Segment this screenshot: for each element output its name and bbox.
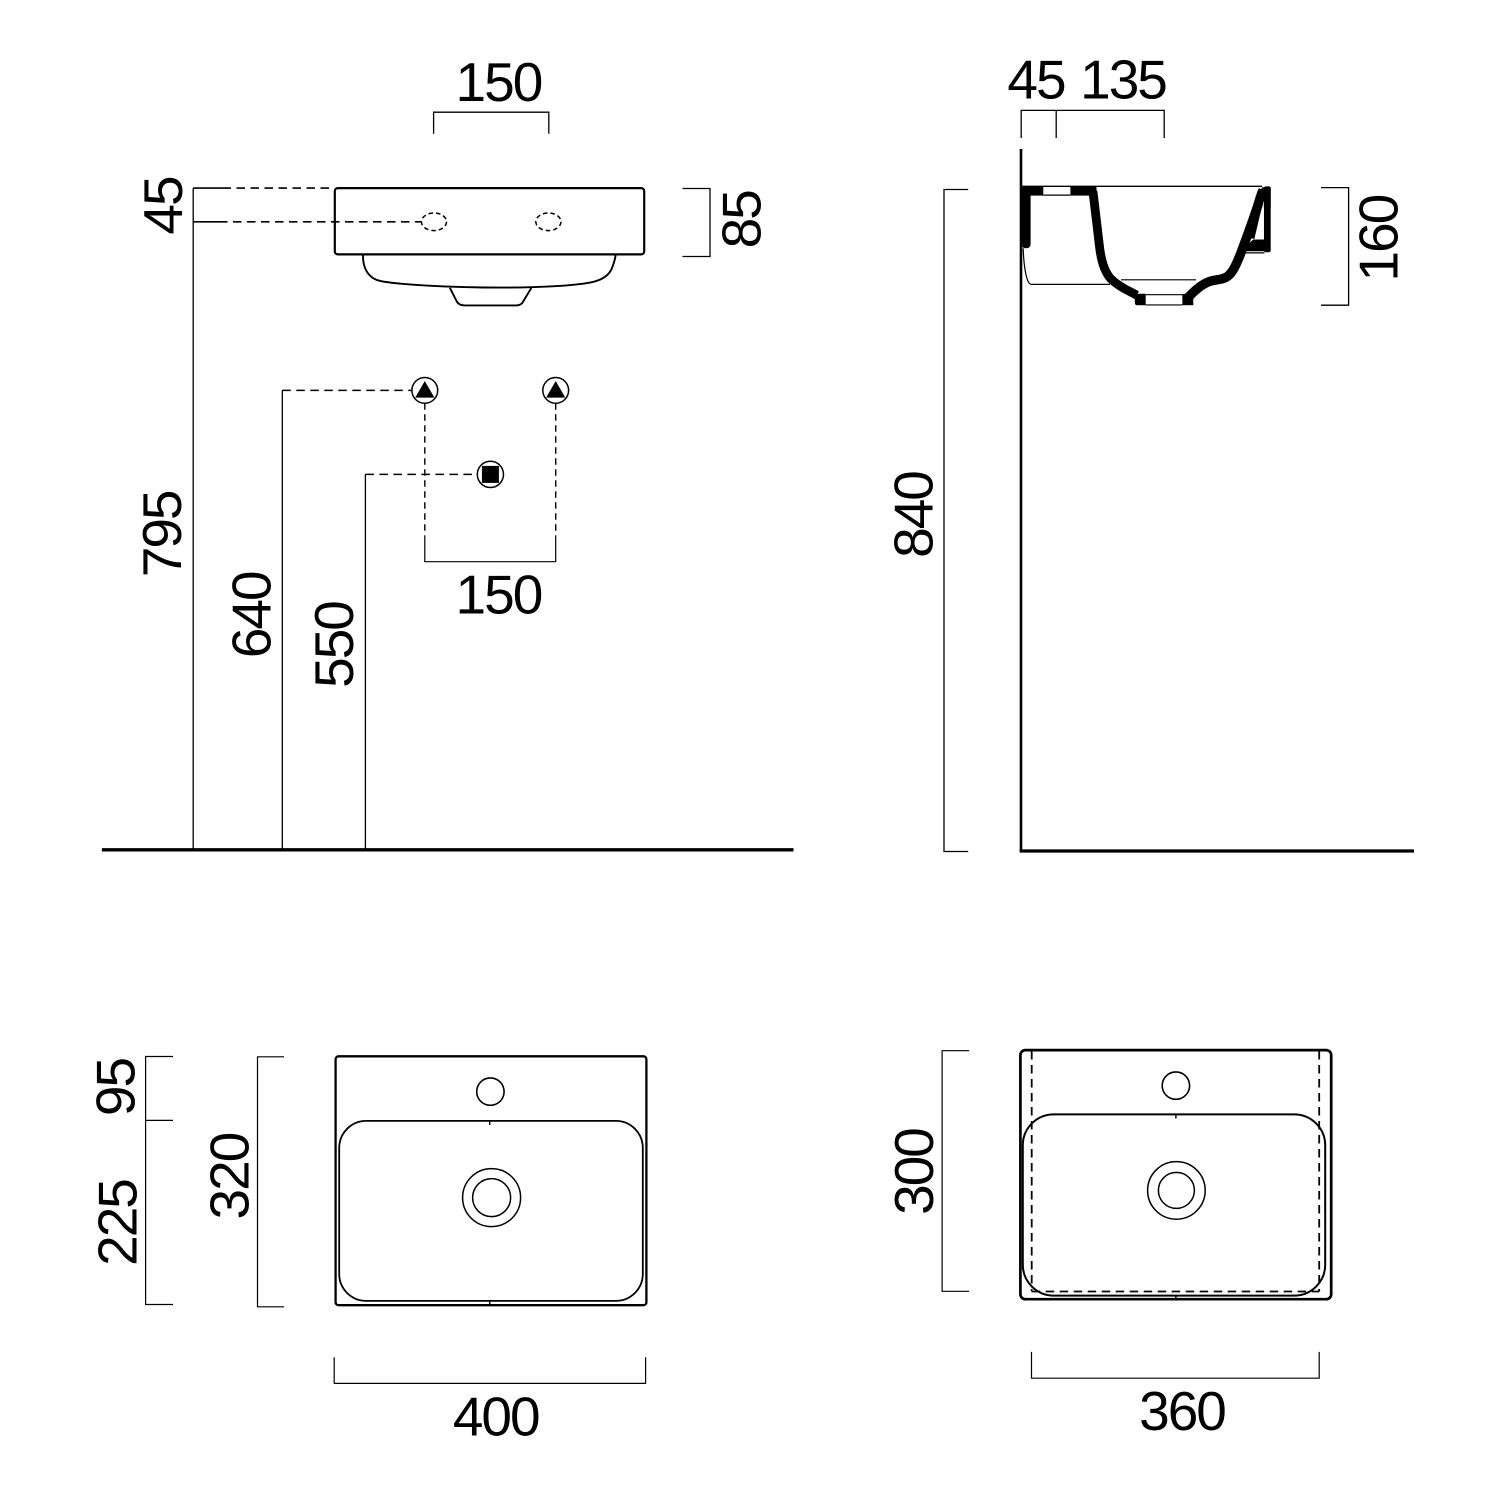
svg-text:135: 135 [1080,48,1166,110]
svg-text:360: 360 [1139,1380,1225,1442]
svg-text:225: 225 [87,1180,149,1266]
svg-text:400: 400 [453,1385,539,1447]
svg-text:150: 150 [456,564,542,626]
svg-text:795: 795 [131,491,193,577]
svg-text:840: 840 [882,472,944,558]
svg-text:95: 95 [84,1059,146,1117]
svg-text:85: 85 [711,191,773,249]
svg-text:150: 150 [456,51,542,113]
svg-text:300: 300 [883,1129,945,1215]
svg-text:160: 160 [1347,195,1409,281]
svg-text:640: 640 [221,572,283,658]
svg-text:45: 45 [132,177,194,235]
svg-text:45: 45 [1007,48,1065,110]
svg-text:320: 320 [199,1133,261,1219]
svg-text:550: 550 [303,602,365,688]
